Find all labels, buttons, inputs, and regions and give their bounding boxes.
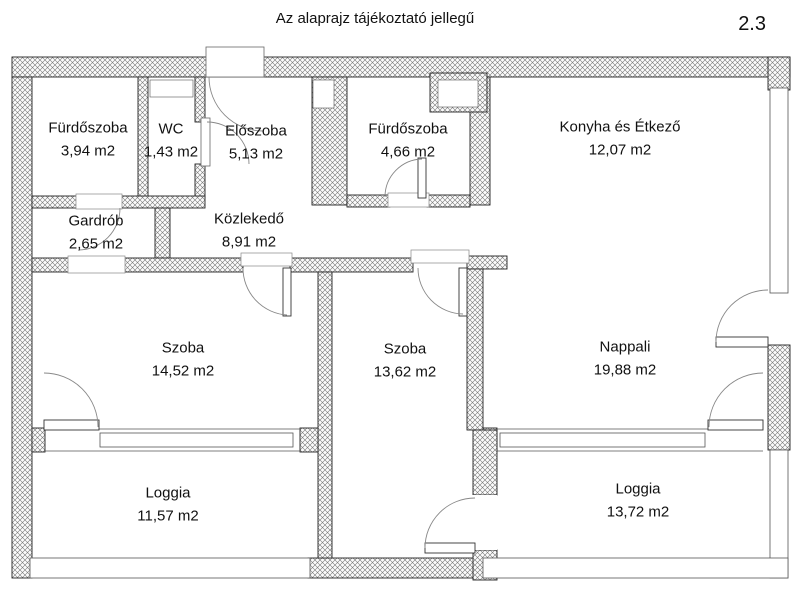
shaft-above-wc xyxy=(150,80,193,97)
floorplan-drawing xyxy=(0,0,800,600)
shaft-hall-bath2 xyxy=(313,80,334,108)
room2-door-leaf xyxy=(459,268,467,316)
wall-corridor-room1-right xyxy=(290,258,413,272)
gardrob-opening-threshold xyxy=(68,256,125,273)
wall-room1-room2 xyxy=(318,272,332,558)
window-living xyxy=(500,433,705,447)
window-right-kitchen xyxy=(770,88,788,293)
floorplan-page: Az alaprajz tájékoztató jellegű 2.3 xyxy=(0,0,800,600)
room-label-szoba-1: Szoba 14,52 m2 xyxy=(152,338,215,383)
railing-loggia2-bottom xyxy=(483,558,788,578)
wall-gardrob-corridor xyxy=(155,208,170,258)
room-label-wc: WC 1,43 m2 xyxy=(144,119,198,164)
wall-exterior-right-top xyxy=(768,57,790,90)
room-area: 19,88 m2 xyxy=(594,359,657,382)
wall-exterior-bottom-mid xyxy=(308,558,482,578)
room-name: Fürdőszoba xyxy=(48,118,127,141)
pier-loggia1-left xyxy=(32,428,45,452)
bath2-door-leaf xyxy=(418,158,426,198)
wall-room2-living xyxy=(467,269,483,430)
room-area: 2,65 m2 xyxy=(68,233,123,256)
bath1-door-threshold xyxy=(76,194,122,209)
room2-loggia-door-swing xyxy=(425,498,475,548)
room-label-gardrob: Gardrób 2,65 m2 xyxy=(68,211,123,256)
room-name: WC xyxy=(144,119,198,142)
room2-door-swing xyxy=(418,268,463,314)
wall-gardrob-room1-left xyxy=(32,258,70,272)
room-label-furdoszoba-1: Fürdőszoba 3,94 m2 xyxy=(48,118,127,163)
wc-door-leaf xyxy=(201,118,210,166)
wall-exterior-top xyxy=(12,57,790,77)
wall-room2-loggia2-upper xyxy=(473,430,497,495)
room-label-szoba-2: Szoba 13,62 m2 xyxy=(374,339,437,384)
window-room1 xyxy=(100,433,293,447)
wall-wc-hall-lower xyxy=(195,164,205,198)
railing-loggia1-bottom xyxy=(30,558,310,578)
living-loggia-door-swing xyxy=(709,373,763,427)
room-area: 14,52 m2 xyxy=(152,360,215,383)
room-name: Közlekedő xyxy=(214,209,284,232)
room-label-furdoszoba-2: Fürdőszoba 4,66 m2 xyxy=(368,119,447,164)
room-area: 1,43 m2 xyxy=(144,141,198,164)
room1-door-swing xyxy=(243,268,287,315)
wall-corridor-room1-left xyxy=(123,258,243,272)
room-area: 13,62 m2 xyxy=(374,361,437,384)
room-label-loggia-2: Loggia 13,72 m2 xyxy=(607,479,670,524)
wall-bath1-gardrob-right xyxy=(120,196,205,208)
wall-corridor-living-pier xyxy=(467,256,507,269)
entry-door-leaf xyxy=(206,47,264,77)
wall-bath1-gardrob-left xyxy=(32,196,78,208)
room-name: Szoba xyxy=(152,338,215,361)
room-label-loggia-1: Loggia 11,57 m2 xyxy=(137,483,198,528)
room-area: 11,57 m2 xyxy=(137,505,198,528)
bath2-door-swing xyxy=(385,159,422,197)
room-area: 4,66 m2 xyxy=(368,141,447,164)
room-label-nappali: Nappali 19,88 m2 xyxy=(594,337,657,382)
room-name: Loggia xyxy=(137,483,198,506)
room-label-konyha-etkezo: Konyha és Étkező 12,07 m2 xyxy=(560,117,681,162)
room1-loggia-door-leaf xyxy=(44,420,99,430)
room-label-kozlekedo: Közlekedő 8,91 m2 xyxy=(214,209,284,254)
room-name: Gardrób xyxy=(68,211,123,234)
room-name: Előszoba xyxy=(225,121,287,144)
wall-exterior-left xyxy=(12,77,32,578)
room-area: 5,13 m2 xyxy=(225,143,287,166)
room-name: Fürdőszoba xyxy=(368,119,447,142)
room-name: Loggia xyxy=(607,479,670,502)
room-name: Nappali xyxy=(594,337,657,360)
room1-door-leaf xyxy=(283,268,291,316)
room-area: 12,07 m2 xyxy=(560,139,681,162)
room2-loggia-opening xyxy=(471,495,497,550)
room2-door-threshold xyxy=(411,250,469,263)
wall-bath2-bottom-right xyxy=(427,195,470,207)
room-area: 3,94 m2 xyxy=(48,140,127,163)
living-right-door-swing xyxy=(716,290,768,342)
wall-bath2-bottom-left xyxy=(347,195,390,207)
shaft-bath2 xyxy=(438,80,478,107)
room-area: 8,91 m2 xyxy=(214,231,284,254)
pier-loggia1-right xyxy=(300,428,318,452)
wall-wc-hall-upper xyxy=(195,77,205,122)
room-area: 13,72 m2 xyxy=(607,501,670,524)
room-label-eloszoba: Előszoba 5,13 m2 xyxy=(225,121,287,166)
living-loggia-door-leaf xyxy=(708,420,763,430)
room1-loggia-door-swing xyxy=(44,373,98,427)
room2-loggia-door-leaf xyxy=(425,543,475,553)
room-name: Konyha és Étkező xyxy=(560,117,681,140)
room-name: Szoba xyxy=(374,339,437,362)
wall-exterior-right-mid xyxy=(768,345,790,450)
room1-door-threshold xyxy=(241,253,292,266)
living-right-door-leaf xyxy=(716,337,768,347)
